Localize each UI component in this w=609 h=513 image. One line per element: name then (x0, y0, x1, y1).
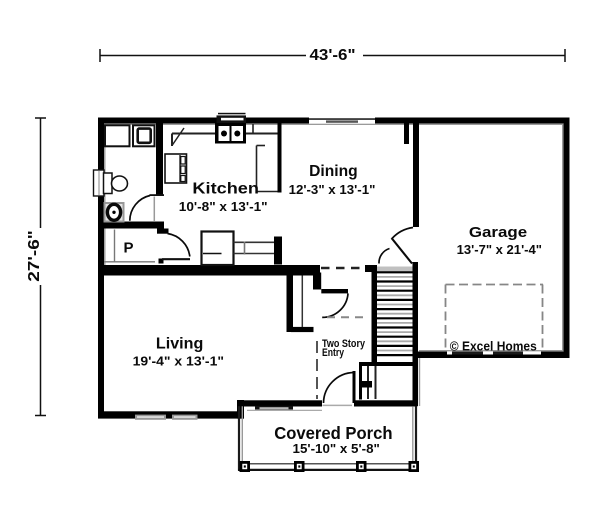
svg-text:Living: Living (156, 336, 203, 353)
svg-text:Garage: Garage (469, 224, 527, 241)
svg-text:Entry: Entry (322, 347, 345, 359)
svg-text:Dining: Dining (309, 163, 358, 180)
svg-text:10'-8" x 13'-1": 10'-8" x 13'-1" (179, 199, 268, 214)
svg-text:15'-10" x 5'-8": 15'-10" x 5'-8" (293, 441, 380, 456)
svg-text:Kitchen: Kitchen (192, 181, 259, 198)
svg-text:12'-3" x 13'-1": 12'-3" x 13'-1" (289, 182, 376, 197)
svg-text:19'-4" x 13'-1": 19'-4" x 13'-1" (133, 354, 224, 369)
svg-text:27'-6": 27'-6" (26, 230, 43, 282)
svg-text:13'-7" x 21'-4": 13'-7" x 21'-4" (457, 242, 542, 257)
svg-text:© Excel Homes: © Excel Homes (450, 340, 537, 354)
svg-text:P: P (123, 240, 133, 257)
svg-text:43'-6": 43'-6" (310, 47, 356, 64)
svg-text:Covered Porch: Covered Porch (274, 423, 392, 443)
